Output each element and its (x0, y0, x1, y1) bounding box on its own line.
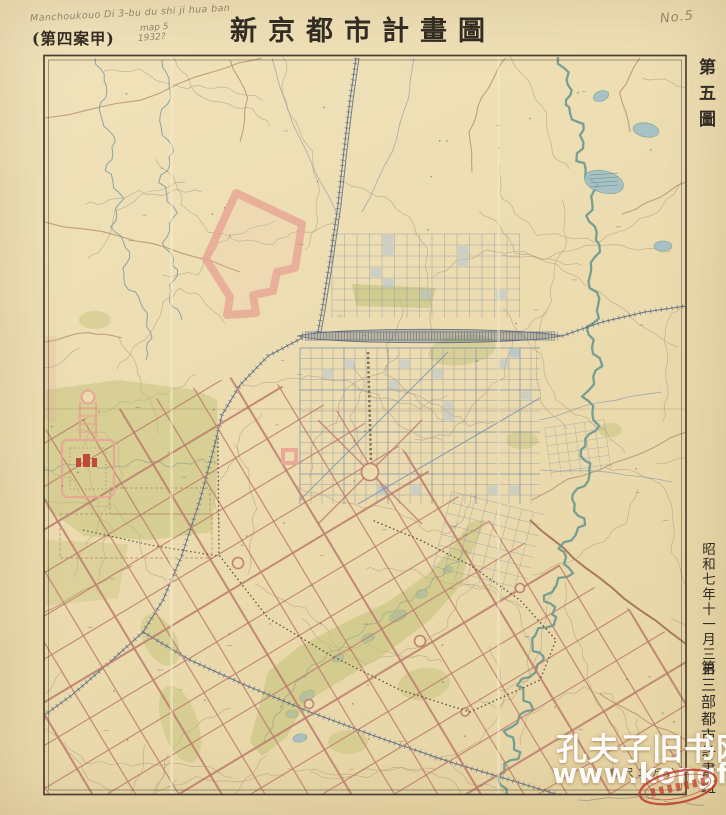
page-title: 新京都市計畫圖 (230, 9, 496, 48)
map-artwork (0, 0, 726, 815)
sheet-number-label: 第五圖 (693, 58, 718, 136)
map-canvas (0, 0, 726, 815)
date-label: 昭和七年十一月三日 (697, 542, 717, 677)
library-stamp (600, 755, 726, 815)
plan-variant-label: (第四案甲) (32, 27, 115, 49)
pencil-note-year: 1932? (138, 32, 166, 44)
map-sheet: Manchoukouo Di 3-bu du shi ji hua ban ma… (0, 0, 726, 815)
library-stamp-art (637, 764, 720, 811)
